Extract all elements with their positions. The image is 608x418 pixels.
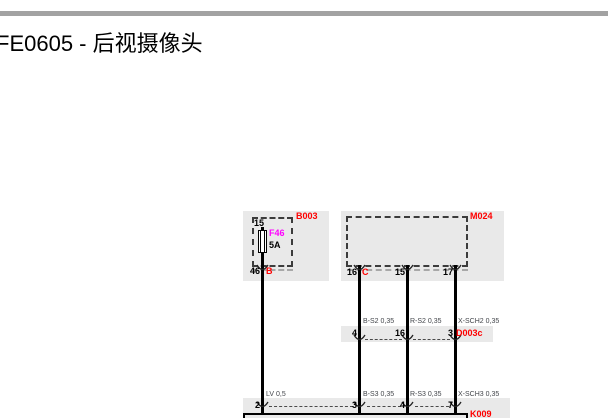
inline-pin-3: 3 (429, 328, 453, 338)
wire-label: B-S3 0,35 (363, 391, 394, 398)
fuse-rating-label: 5A (269, 240, 281, 250)
inline-pin-4: 4 (333, 328, 357, 338)
wire-label: X-SCH2 0,35 (458, 318, 499, 325)
module-pin-17: 17 (429, 267, 453, 277)
module-outline (346, 216, 468, 267)
header-divider-bar (0, 11, 608, 16)
bottom-pin-2: 2 (236, 400, 260, 410)
bottom-pin-3: 3 (333, 400, 357, 410)
wiring-diagram-page: FE0605 - 后视摄像头 B003 15 F46 5A 46 B M024 … (0, 0, 608, 418)
fusebox-id-label: B003 (296, 211, 318, 221)
bottom-component-id-label: K009 (470, 409, 492, 418)
bottom-pin-7: 7 (429, 400, 453, 410)
bottom-pin-4: 4 (381, 400, 405, 410)
fusebox-connector-letter: B (266, 266, 273, 276)
wire-fusebox-to-kbox (261, 227, 264, 414)
inline-connector-id-label: D003c (456, 328, 483, 338)
inline-connector-dashline (413, 339, 450, 340)
module-pin-16: 16 (333, 267, 357, 277)
wire-label: R-S3 0,35 (410, 391, 442, 398)
inline-pin-16: 16 (381, 328, 405, 338)
fuse-pin-top: 15 (240, 218, 264, 228)
fuse-icon (258, 230, 267, 253)
module-id-label: M024 (470, 211, 493, 221)
wire-label: X-SCH3 0,35 (458, 391, 499, 398)
wire-label: B-S2 0,35 (363, 318, 394, 325)
page-title: FE0605 - 后视摄像头 (0, 26, 203, 58)
inline-connector-dashline (365, 339, 402, 340)
fuse-id-label: F46 (269, 228, 285, 238)
bottom-component-outline (243, 413, 468, 418)
wire-label: R-S2 0,35 (410, 318, 442, 325)
module-pin-15: 15 (381, 267, 405, 277)
module-connector-letter: C (362, 267, 369, 277)
wire-label: LV 0,5 (266, 391, 286, 398)
fusebox-pin-46: 46 (236, 266, 260, 276)
